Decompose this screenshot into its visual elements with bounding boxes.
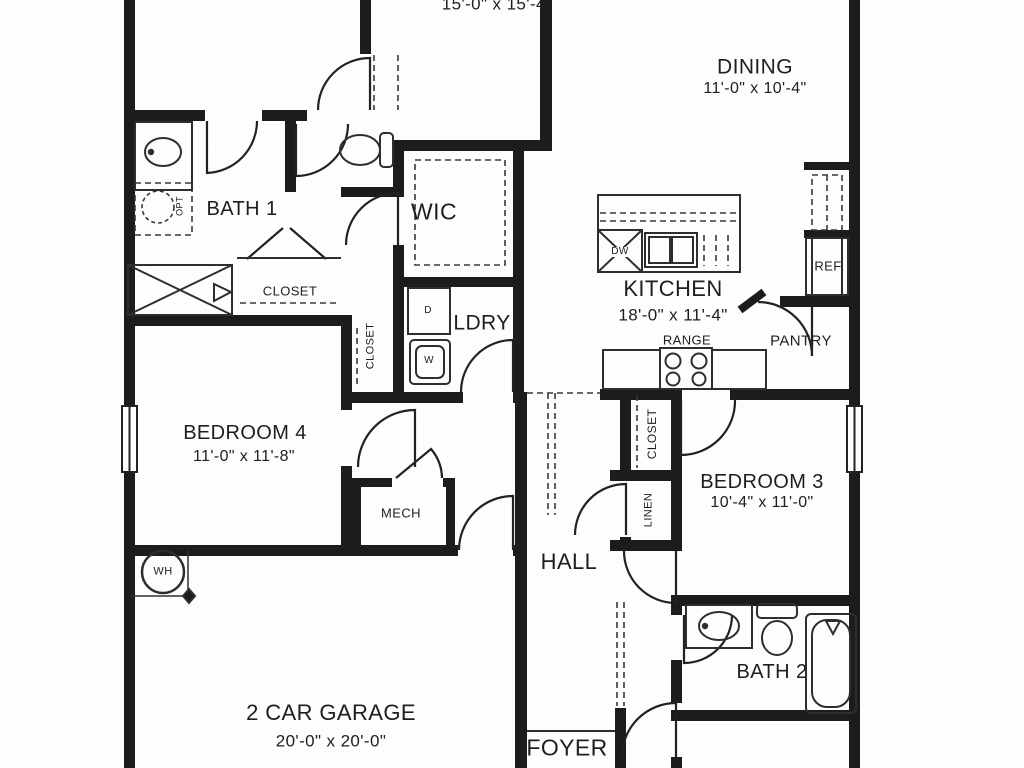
optional-fixture-icon (142, 191, 174, 223)
toilet-icon (762, 621, 792, 655)
kitchen-sink-icon (672, 237, 693, 263)
doors (207, 58, 812, 757)
room-label-laundry: LDRY (453, 313, 510, 334)
room-dims-garage: 20'-0" x 20'-0" (276, 733, 387, 750)
closet-label-laundry: CLOSET (366, 323, 377, 369)
door-direction-icon (214, 284, 231, 301)
wall (515, 395, 527, 768)
door-swing-icon (396, 449, 442, 478)
water-heater-label: WH (153, 567, 172, 578)
wall (513, 545, 527, 556)
toilet-tank-icon (757, 604, 797, 618)
wall (446, 478, 455, 545)
room-dims-dining: 11'-0" x 10'-4" (703, 81, 806, 97)
toilet-icon (340, 135, 380, 165)
wall (600, 389, 677, 400)
wall (124, 0, 135, 406)
faucet-icon (703, 624, 707, 628)
room-label-pantry: PANTRY (770, 334, 832, 349)
bathtub-icon (812, 620, 850, 707)
toilet-tank-icon (380, 133, 393, 167)
washer-label: W (424, 356, 434, 366)
wall (285, 110, 296, 192)
room-label-hall: HALL (541, 551, 598, 573)
wall (610, 470, 682, 481)
room-label-kitchen: KITCHEN (623, 278, 722, 300)
wall (341, 466, 352, 556)
room-label-bedroom4: BEDROOM 4 (183, 423, 307, 443)
dashed-lines (135, 55, 842, 706)
door-swing-icon (622, 703, 676, 757)
dishwasher-label: DW (610, 247, 629, 257)
range-burners-icon (667, 373, 680, 386)
door-swing-icon (575, 484, 626, 535)
closet-label-hall: CLOSET (646, 409, 658, 459)
refrigerator-label: REF (814, 260, 841, 273)
counter (603, 350, 660, 389)
door-swing-icon (624, 551, 676, 603)
wall (849, 470, 860, 768)
wall (804, 162, 849, 170)
door-swing-icon (207, 121, 257, 173)
wall (540, 0, 552, 142)
floor-plan-drawing (0, 0, 1024, 768)
wall (513, 140, 524, 403)
door-swing-icon (681, 400, 735, 455)
tub-faucet-icon (826, 621, 840, 634)
wall (671, 710, 860, 721)
linen-label: LINEN (644, 493, 655, 527)
wall (341, 315, 352, 410)
wall (730, 389, 850, 400)
wall (671, 757, 682, 768)
walls (124, 0, 860, 768)
faucet-icon (149, 150, 153, 154)
door-swing-icon (358, 410, 415, 467)
wall (262, 110, 307, 121)
dryer-label: D (424, 306, 432, 316)
wall (804, 230, 849, 238)
wall (360, 0, 371, 54)
door-swing-icon (346, 193, 398, 245)
wall (393, 277, 524, 287)
floor-plan: 15'-0" x 15'-4" DINING 11'-0" x 10'-4" B… (0, 0, 1024, 768)
wall (620, 389, 631, 481)
door-swing-icon (459, 496, 513, 550)
door-swing-icon (461, 340, 513, 392)
room-label-bath1: BATH 1 (207, 199, 278, 219)
wall (124, 470, 135, 768)
optional-label: OPT (176, 196, 185, 216)
room-label-bedroom3: BEDROOM 3 (700, 472, 824, 492)
vanity-counter (135, 122, 192, 190)
wall (341, 392, 463, 403)
kitchen-sink-icon (649, 237, 670, 263)
room-label-garage: 2 CAR GARAGE (246, 702, 416, 724)
upper-cabinet-icon (812, 175, 842, 230)
room-label-mech: MECH (381, 507, 421, 520)
wall (780, 296, 849, 307)
top-room-dims: 15'-0" x 15'-4" (442, 0, 553, 13)
room-label-wic: WIC (411, 201, 457, 224)
wall (124, 110, 205, 121)
wall (393, 140, 404, 192)
range-burners-icon (666, 354, 681, 369)
wall (393, 140, 552, 151)
wall (393, 245, 404, 398)
room-label-dining: DINING (717, 57, 793, 78)
wall (352, 478, 361, 545)
platform-marker-icon (183, 589, 195, 603)
room-label-bath2: BATH 2 (737, 662, 808, 682)
room-dims-bedroom4: 11'-0" x 11'-8" (193, 449, 295, 465)
range-label: RANGE (663, 334, 711, 347)
bifold-door-icon (247, 228, 326, 259)
range-burners-icon (692, 354, 707, 369)
room-dims-kitchen: 18'-0" x 11'-4" (618, 307, 727, 324)
counter (712, 350, 766, 389)
wall (124, 315, 352, 326)
wall (671, 606, 682, 615)
wall (671, 660, 682, 703)
closet-label-bath1: CLOSET (263, 285, 317, 298)
room-label-foyer: FOYER (526, 737, 607, 760)
range-burners-icon (693, 373, 706, 386)
room-dims-bedroom3: 10'-4" x 11'-0" (710, 495, 813, 511)
wall (610, 540, 682, 551)
wall (849, 0, 860, 406)
door-swing-icon (318, 58, 370, 110)
